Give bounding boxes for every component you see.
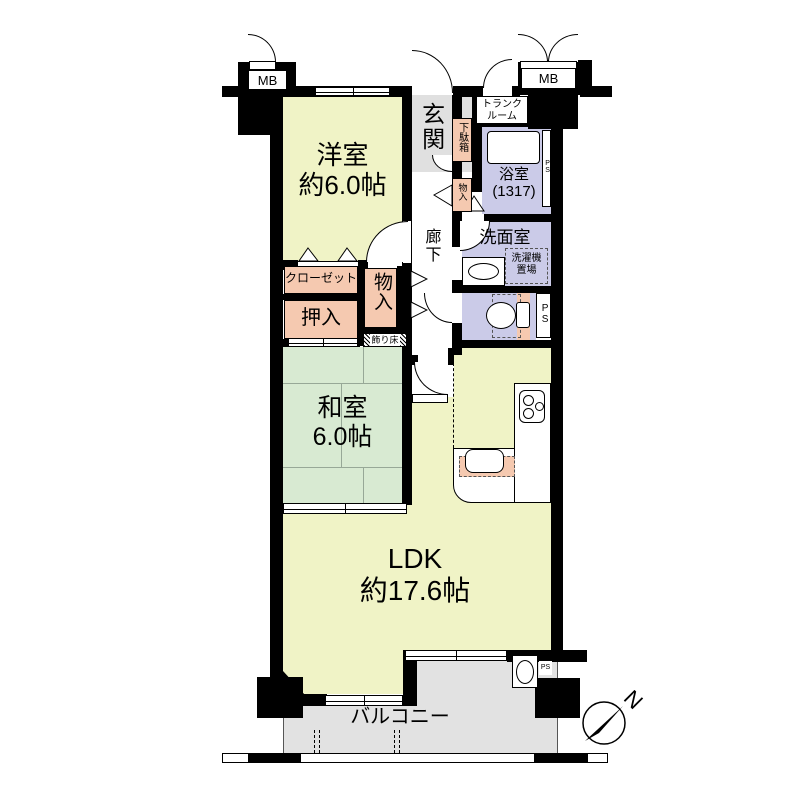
stove-burner (523, 408, 534, 419)
balcony-divider (394, 730, 400, 753)
stove (519, 390, 545, 423)
tatami-line (363, 347, 364, 383)
room-western-label: 洋室 約6.0帖 (283, 140, 402, 200)
storage-door-icon (433, 184, 453, 207)
wall-chunk-left (238, 95, 273, 135)
ldk-door-arc (414, 362, 448, 395)
stove-burner (535, 402, 544, 411)
wall-bath-bottom (484, 214, 551, 222)
compass-n-label: N (619, 690, 648, 714)
mb-right-door-arc-left (518, 34, 548, 62)
compass-icon: N (575, 690, 653, 760)
shoe-cabinet-label: 下駄箱 (456, 122, 468, 152)
wall-hall-right-4 (452, 280, 462, 293)
railing-post (248, 753, 301, 763)
room-washroom-label: 洗面室 (462, 228, 548, 248)
room-ldk-label: LDK 約17.6帖 (330, 543, 500, 608)
floor-plan: N 洋室 約6.0帖 玄関 下駄箱 トランク ルーム 浴室 (1317) 洗面室… (0, 0, 800, 800)
window-western-top (315, 87, 390, 96)
room-japanese-label: 和室 6.0帖 (283, 394, 402, 452)
ps-bathroom-label: PS (543, 160, 551, 174)
washbasin-bowl (468, 263, 499, 280)
balcony-railing (222, 753, 608, 763)
window-ldk-balcony-right (405, 650, 507, 661)
mb-left-door-arc (248, 34, 276, 62)
block-bottom-right (535, 678, 580, 718)
toilet-tank (516, 302, 530, 328)
wall-stub-right (580, 86, 612, 97)
oshiire-sliding-door (288, 338, 358, 347)
tatami-line (283, 467, 402, 468)
wall-hall-right-2 (452, 162, 462, 178)
hallway-label: 廊下 (421, 228, 440, 264)
wall-stub-left (222, 86, 238, 97)
mb-right-door-arc-right (548, 34, 578, 62)
mb-right-label: MB (521, 71, 576, 86)
ps-toilet-label: PS (539, 303, 551, 325)
mb-left-label: MB (248, 73, 287, 88)
toilet-door-arc (424, 293, 452, 323)
stove-burner (523, 395, 534, 406)
mb-left-door-leaf (249, 61, 276, 70)
room-bathroom-label: 浴室 (1317) (482, 166, 546, 201)
window-ldk-balcony-left (325, 695, 403, 706)
wall-right (551, 127, 563, 662)
slop-sink-bowl (516, 660, 534, 684)
ps-balcony-label: PS (539, 664, 552, 672)
wall-toilet-bottom (452, 340, 563, 348)
tatami-line (283, 383, 402, 384)
wall-washroom-toilet (462, 286, 551, 293)
trunk-room-label: トランク ルーム (476, 99, 528, 122)
trunk-room-door-arc (483, 59, 512, 88)
closet-bifold-icon (298, 247, 319, 263)
entrance-door-arc (412, 50, 453, 93)
kitchen-sink (465, 449, 504, 473)
japanese-ldk-sliding-door (283, 503, 407, 514)
laundry-space-label: 洗濯機 置場 (505, 253, 548, 276)
toilet-bowl (486, 302, 516, 329)
oshiire-label: 押入 (284, 307, 358, 330)
ldk-door-leaf (412, 394, 448, 403)
bathtub (487, 131, 540, 164)
kitchen-zone-dash (453, 363, 454, 448)
storage-door-icon (410, 270, 428, 288)
balcony-divider (314, 730, 320, 753)
storage-lower-label: 物入 (370, 272, 392, 312)
storage-upper-label: 物入 (457, 183, 467, 201)
wall-left (270, 95, 283, 697)
balcony-label: バルコニー (300, 706, 500, 729)
room-entrance-label: 玄関 (418, 102, 445, 152)
wall-hall-right-1 (452, 95, 462, 118)
closet-label: クローゼット (284, 272, 358, 286)
closet-bifold-icon (337, 247, 358, 263)
storage-door-icon (410, 301, 428, 319)
tokonoma-label: 飾り床 (363, 335, 407, 345)
tatami-line (363, 467, 364, 503)
block-bottom-left (257, 677, 303, 718)
